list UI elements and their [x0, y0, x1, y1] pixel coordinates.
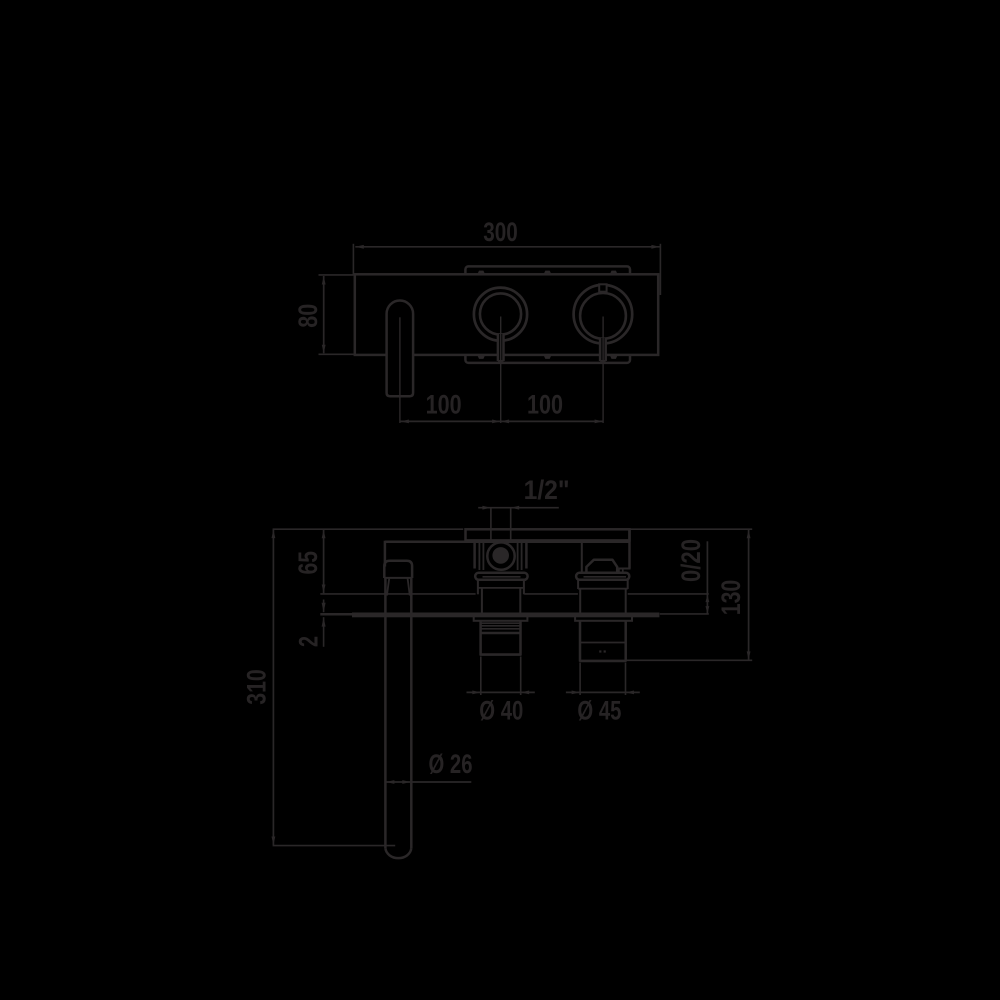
svg-text:65: 65: [293, 551, 323, 575]
svg-text:0/20: 0/20: [676, 539, 706, 582]
svg-text:130: 130: [716, 580, 746, 616]
svg-text:Ø 45: Ø 45: [577, 695, 621, 725]
svg-text:80: 80: [293, 304, 323, 328]
svg-text:100: 100: [426, 389, 462, 419]
svg-text:100: 100: [527, 389, 563, 419]
svg-text:310: 310: [242, 669, 272, 705]
svg-text:Ø 40: Ø 40: [479, 695, 523, 725]
svg-text:1/2": 1/2": [524, 475, 570, 505]
svg-text:300: 300: [483, 217, 518, 247]
svg-text:2: 2: [294, 636, 324, 647]
svg-text:Ø 26: Ø 26: [429, 749, 473, 779]
